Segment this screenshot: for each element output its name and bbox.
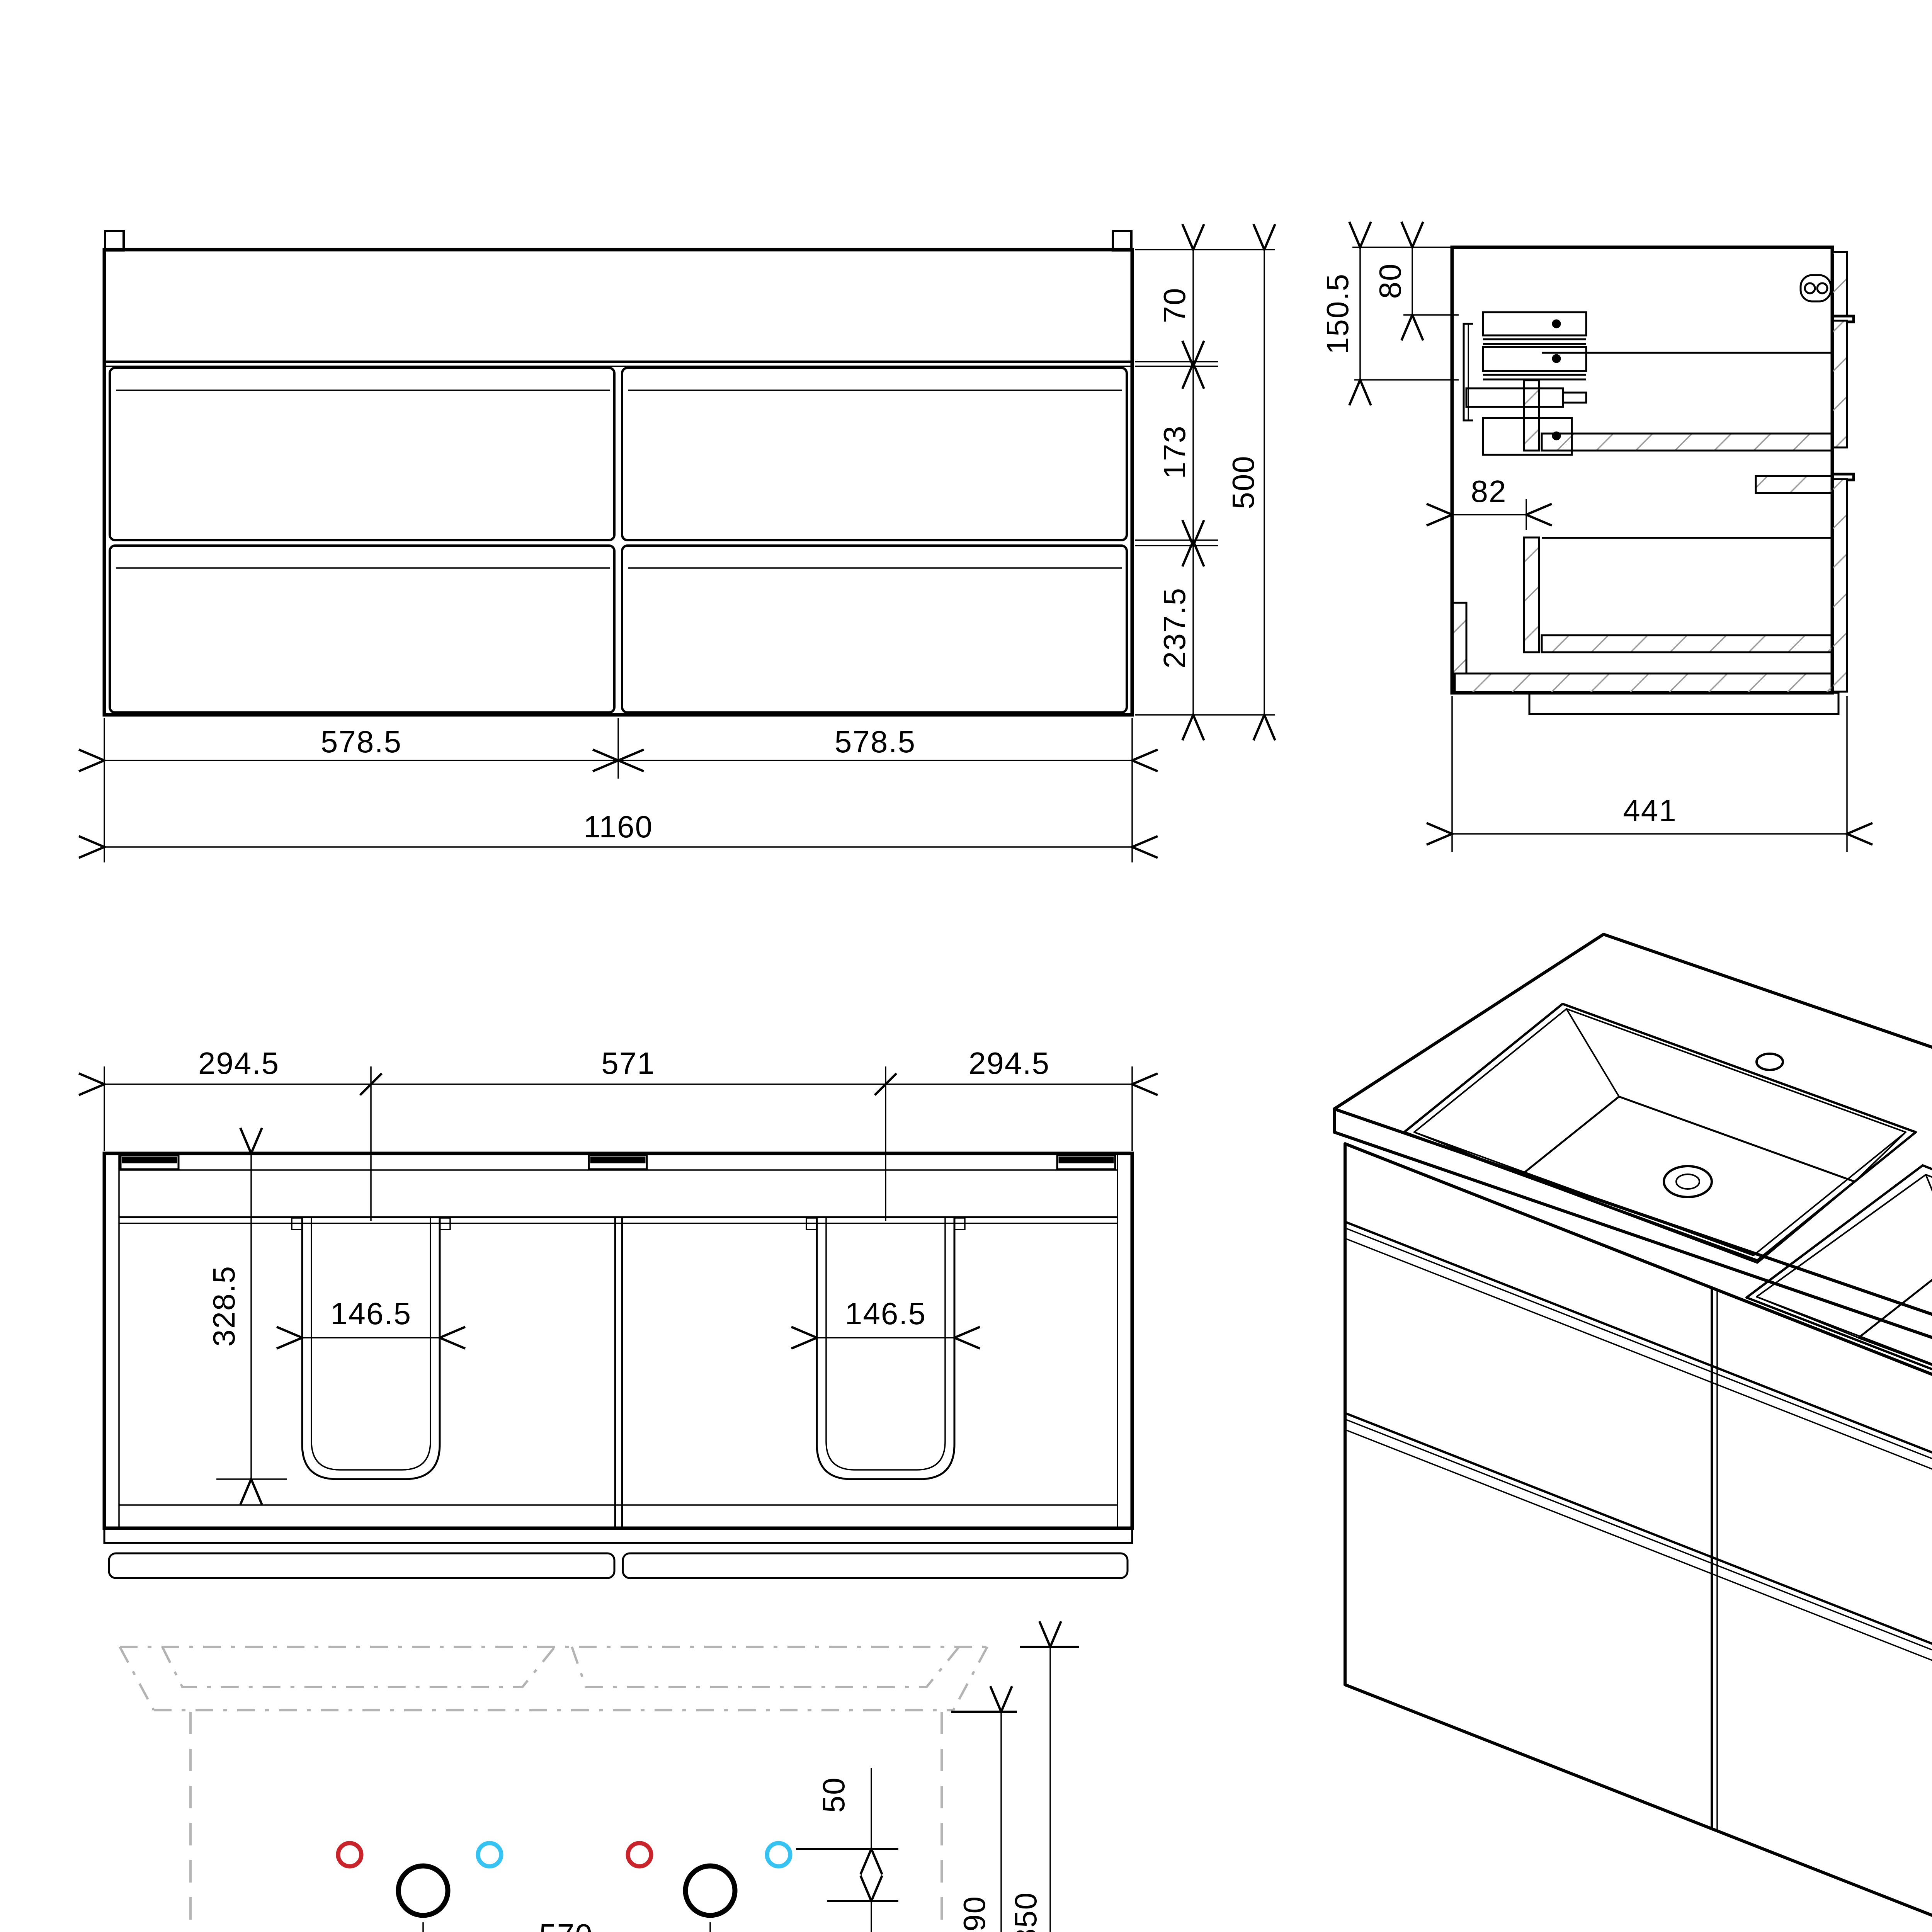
front-cabinet-parts — [104, 231, 1132, 713]
top-mount-tabs — [121, 1155, 1115, 1169]
front-dimensions — [104, 250, 1275, 862]
hot-water-hole — [628, 1843, 651, 1866]
iso-drawer-lines — [1345, 1222, 1932, 1831]
front-detail-lines — [104, 366, 1132, 568]
side-view — [1352, 247, 1854, 852]
washbasin-phantom-outline — [120, 1647, 987, 1710]
iso-basin-left — [1404, 1004, 1916, 1263]
top-structure — [104, 1217, 1132, 1578]
top-dimensions — [104, 1066, 1132, 1479]
cold-water-hole — [478, 1843, 501, 1866]
top-outline — [104, 1153, 1132, 1528]
side-section-parts — [1453, 252, 1847, 714]
front-view — [104, 231, 1275, 862]
drain-hole — [685, 1866, 735, 1915]
front-cabinet-outline — [104, 250, 1132, 715]
cabinet-phantom-outline — [190, 1712, 942, 1932]
isometric-view — [1334, 934, 1932, 1932]
cold-water-hole — [767, 1843, 790, 1866]
top-detail-lines — [119, 1153, 1117, 1528]
drawing-linework — [0, 0, 1932, 1932]
hot-water-hole — [338, 1843, 361, 1866]
installation-dimensions — [423, 1647, 1079, 1932]
iso-basin-right — [1747, 1165, 1932, 1426]
faucet-hole — [1757, 1054, 1783, 1070]
drain-hole — [398, 1866, 448, 1915]
installation-view — [120, 1647, 1092, 1932]
technical-drawing-sheet: 70 173 237.5 500 578.5 578.5 1160 150.5 … — [0, 0, 1932, 1932]
siphon-cutout-left — [292, 1218, 450, 1479]
side-outline — [1452, 247, 1832, 693]
side-dimensions — [1352, 247, 1847, 852]
siphon-cutout-right — [806, 1218, 965, 1479]
top-view — [104, 1066, 1132, 1578]
